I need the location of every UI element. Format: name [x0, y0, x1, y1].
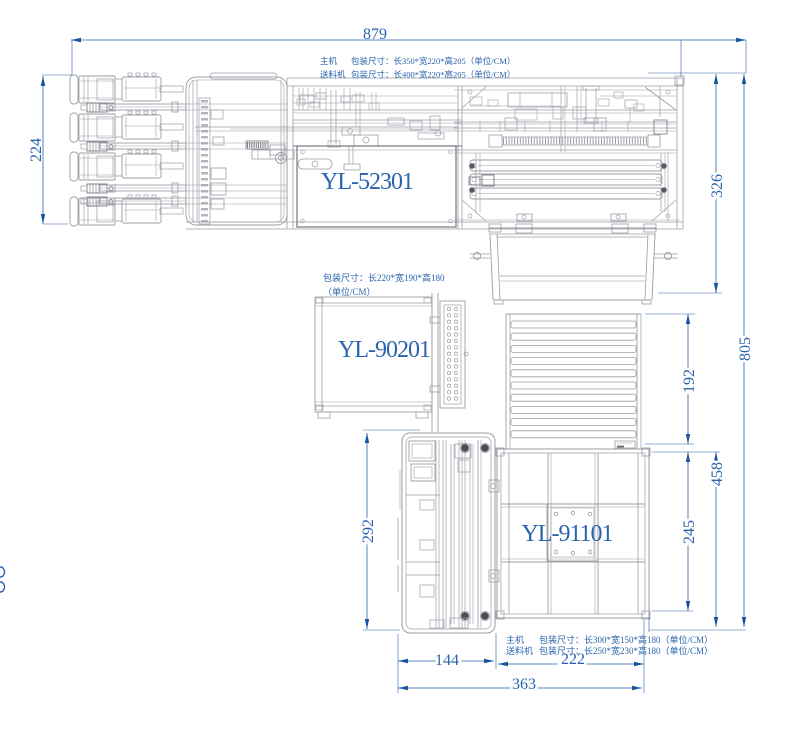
svg-text:879: 879: [363, 26, 387, 43]
svg-text:292: 292: [360, 519, 377, 543]
svg-text:363: 363: [512, 676, 536, 693]
svg-text:458: 458: [709, 462, 726, 486]
svg-text:144: 144: [435, 652, 459, 669]
svg-text:805: 805: [737, 337, 754, 361]
svg-text:YL-90201: YL-90201: [338, 337, 430, 363]
svg-text:326: 326: [709, 174, 726, 198]
svg-text:YL-52301: YL-52301: [321, 169, 413, 195]
svg-text:YL-91101: YL-91101: [521, 521, 612, 547]
svg-text:（单位/CM）: （单位/CM）: [323, 286, 376, 297]
svg-text:245: 245: [681, 520, 698, 544]
svg-text:包装尺寸：长220*宽190*高180: 包装尺寸：长220*宽190*高180: [323, 272, 445, 283]
svg-text:224: 224: [28, 138, 45, 162]
svg-text:192: 192: [681, 369, 698, 393]
